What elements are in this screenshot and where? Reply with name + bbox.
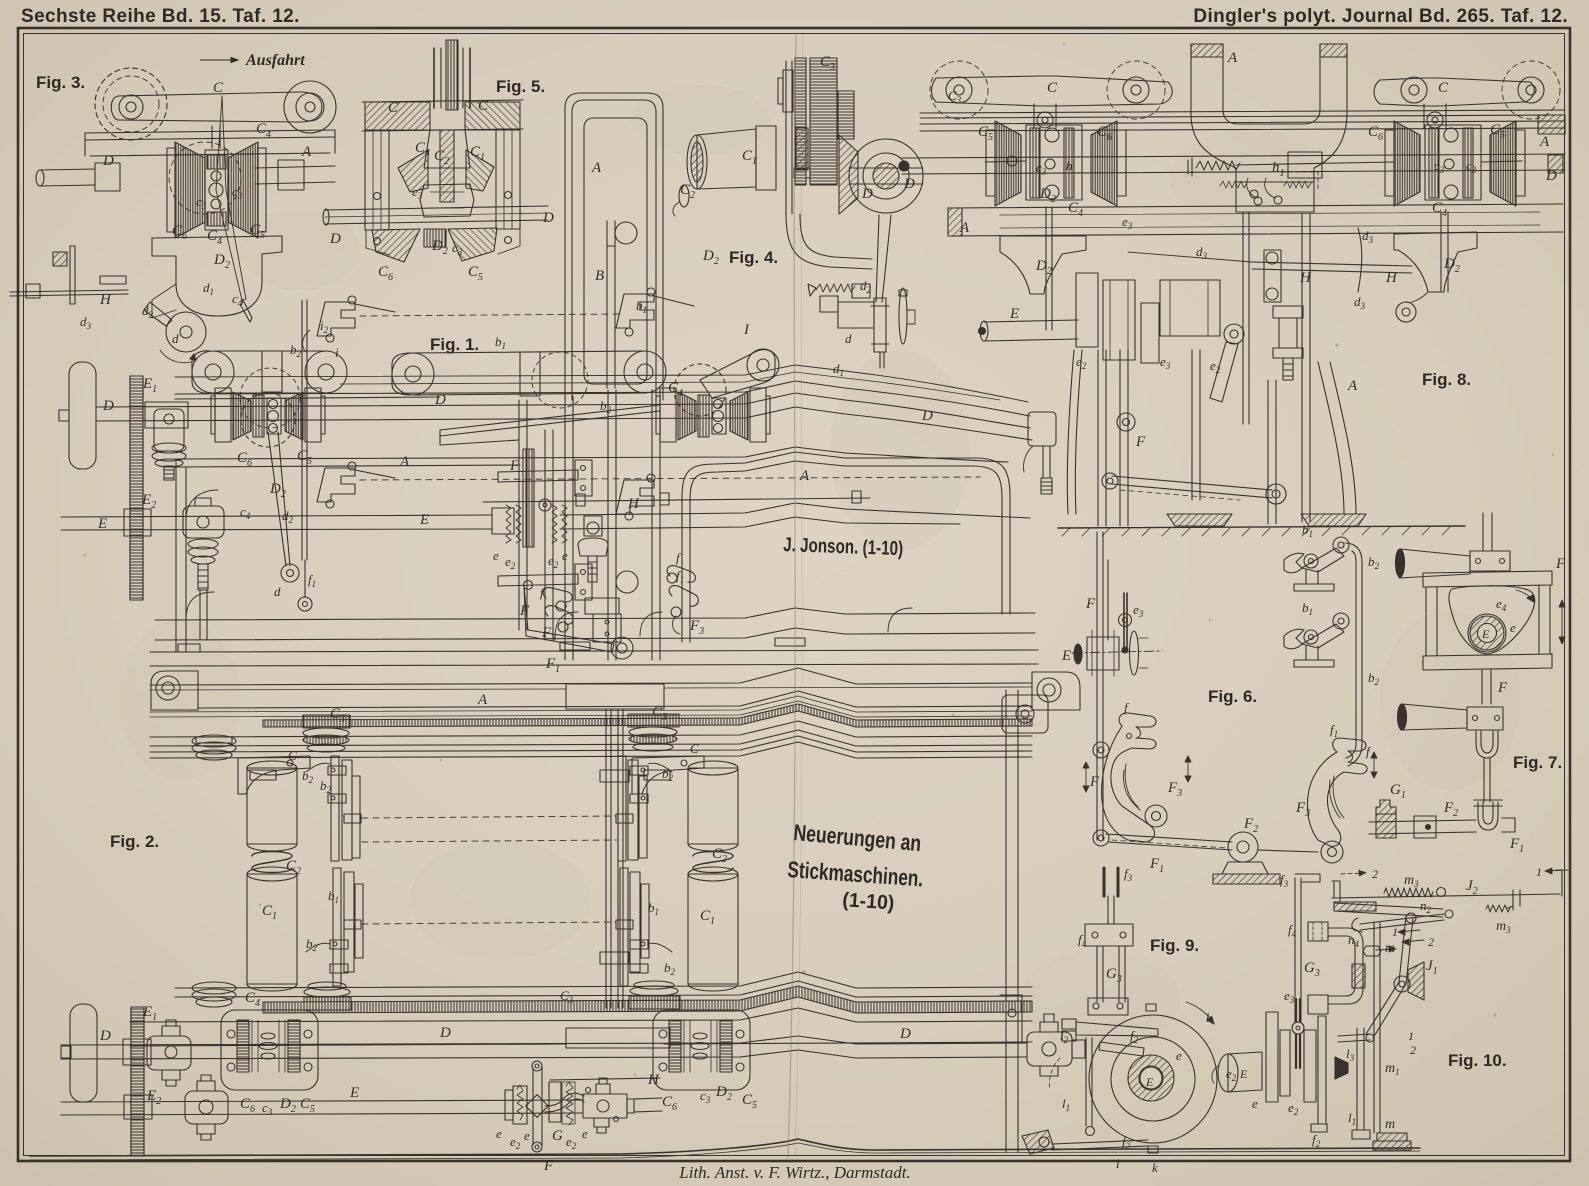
svg-text:A: A	[301, 144, 312, 160]
svg-text:Fig. 9.: Fig. 9.	[1150, 936, 1199, 955]
svg-text:F: F	[1497, 680, 1508, 696]
svg-text:F: F	[1085, 596, 1096, 612]
svg-text:F: F	[519, 603, 530, 619]
svg-text:E: E	[1239, 1067, 1248, 1081]
svg-text:D: D	[899, 1026, 911, 1042]
svg-text:2: 2	[1428, 935, 1434, 949]
svg-text:1: 1	[1392, 925, 1398, 939]
svg-text:e: e	[1510, 620, 1516, 635]
svg-text:d: d	[845, 331, 852, 346]
svg-text:D: D	[542, 210, 554, 226]
svg-text:Dingler's polyt. Journal Bd.: Dingler's polyt. Journal Bd. 265. Taf. 1…	[1193, 6, 1568, 27]
svg-text:C: C	[478, 98, 489, 114]
svg-text:E: E	[1481, 627, 1490, 641]
svg-text:2: 2	[1372, 867, 1378, 881]
svg-text:h: h	[1066, 158, 1073, 173]
svg-text:Fig. 4.: Fig. 4.	[729, 248, 778, 267]
svg-text:D: D	[439, 1025, 451, 1041]
svg-text:e: e	[582, 1126, 588, 1141]
svg-text:Ausfahrt: Ausfahrt	[245, 52, 305, 69]
svg-text:A: A	[591, 160, 602, 176]
svg-text:e: e	[1252, 1096, 1258, 1111]
svg-text:D: D	[434, 392, 446, 408]
svg-text:2: 2	[1410, 1043, 1416, 1057]
svg-text:Fig. 10.: Fig. 10.	[1448, 1051, 1507, 1070]
svg-text:e: e	[524, 1128, 530, 1143]
svg-text:D: D	[1545, 168, 1557, 184]
svg-text:E: E	[1145, 1075, 1154, 1089]
svg-text:F: F	[1135, 434, 1146, 450]
svg-text:E: E	[349, 1085, 359, 1101]
svg-text:D: D	[102, 153, 114, 169]
svg-text:C: C	[388, 100, 399, 116]
svg-text:e: e	[496, 1126, 502, 1141]
svg-text:D: D	[903, 176, 915, 192]
svg-text:D: D	[861, 186, 873, 202]
svg-text:k: k	[1206, 1010, 1212, 1025]
svg-text:E: E	[419, 512, 429, 528]
svg-text:Fig. 2.: Fig. 2.	[110, 832, 159, 851]
svg-text:H: H	[1299, 270, 1312, 286]
svg-text:F: F	[509, 458, 520, 474]
svg-text:A: A	[1227, 50, 1238, 66]
svg-text:i: i	[335, 345, 339, 360]
svg-text:C: C	[288, 748, 297, 763]
svg-text:m: m	[1385, 941, 1395, 956]
svg-text:D: D	[921, 408, 933, 424]
svg-text:Lith. Anst. v. F. Wirtz., Darm: Lith. Anst. v. F. Wirtz., Darmstadt.	[678, 1163, 910, 1182]
svg-text:d: d	[172, 331, 179, 346]
svg-text:A: A	[959, 220, 970, 236]
svg-text:l: l	[1116, 1156, 1120, 1171]
svg-text:H: H	[627, 496, 640, 512]
svg-text:I: I	[743, 322, 750, 338]
svg-text:m: m	[1385, 1117, 1395, 1132]
svg-text:E: E	[1061, 648, 1071, 664]
svg-text:G: G	[552, 1128, 563, 1144]
svg-text:A: A	[1347, 378, 1358, 394]
svg-text:Fig. 3.: Fig. 3.	[36, 73, 85, 92]
svg-text:A: A	[799, 468, 810, 484]
svg-text:C: C	[1438, 80, 1449, 96]
svg-text:J. Jonson. (1-10): J. Jonson. (1-10)	[783, 534, 904, 560]
svg-text:E: E	[97, 516, 107, 532]
svg-text:F: F	[1555, 556, 1566, 572]
svg-text:D: D	[102, 398, 114, 414]
svg-text:1: 1	[1408, 1029, 1414, 1043]
svg-text:H: H	[1385, 270, 1398, 286]
svg-text:B: B	[595, 268, 604, 284]
svg-text:e: e	[493, 548, 499, 563]
svg-text:A: A	[399, 454, 410, 470]
svg-text:A: A	[1539, 134, 1550, 150]
svg-text:H: H	[99, 292, 112, 308]
svg-text:Fig. 7.: Fig. 7.	[1513, 753, 1562, 772]
svg-text:E: E	[1009, 306, 1019, 322]
svg-text:1: 1	[1536, 865, 1542, 879]
svg-text:e: e	[562, 548, 568, 563]
svg-text:Sechste Reihe Bd. 15. Taf. 12: Sechste Reihe Bd. 15. Taf. 12.	[21, 6, 300, 27]
svg-text:F: F	[1089, 774, 1100, 790]
svg-text:D: D	[99, 1028, 111, 1044]
svg-text:e: e	[1176, 1048, 1182, 1063]
svg-text:C: C	[1047, 80, 1058, 96]
svg-text:Fig. 8.: Fig. 8.	[1422, 370, 1471, 389]
svg-text:D: D	[329, 231, 341, 247]
svg-text:C: C	[690, 741, 699, 756]
svg-text:Fig. 5.: Fig. 5.	[496, 77, 545, 96]
svg-text:(1-10): (1-10)	[842, 889, 895, 915]
svg-text:Fig. 6.: Fig. 6.	[1208, 687, 1257, 706]
svg-text:d: d	[274, 584, 281, 599]
svg-text:F: F	[543, 1158, 554, 1174]
svg-text:H: H	[647, 1072, 660, 1088]
svg-text:A: A	[477, 692, 488, 708]
svg-text:C: C	[213, 80, 224, 96]
svg-text:Fig. 1.: Fig. 1.	[430, 335, 479, 354]
svg-text:k: k	[1152, 1160, 1158, 1175]
